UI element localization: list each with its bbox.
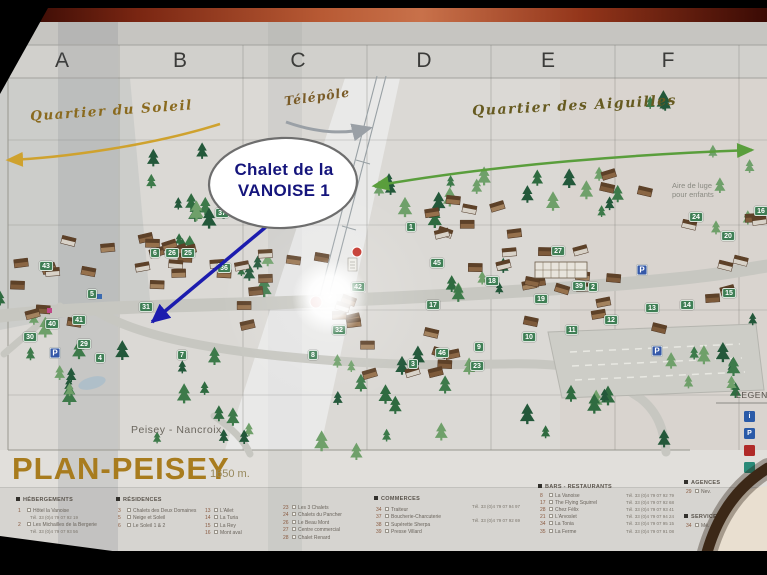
legend-item: 13L'Ailet	[205, 508, 233, 514]
legend-item: 14La Turia	[205, 515, 238, 521]
legend-item: 29Nev.	[686, 489, 711, 495]
legend-item: 34La Tonia	[540, 521, 574, 527]
legend-item: 1Hôtel la Vanoise	[18, 508, 69, 514]
legend-tel: Tél. 33 (0)4 79 07 93 41	[626, 507, 674, 512]
legend-section-title: SERVICES	[684, 514, 721, 520]
legend-item: 35La Ferme	[540, 529, 576, 535]
legend-item: 5Neige et Soleil	[118, 515, 165, 521]
letterbox-top	[0, 0, 767, 8]
legend-section-title: COMMERCES	[374, 496, 420, 502]
legend-tel: Tél. 33 (0)4 79 07 95 15	[626, 521, 674, 526]
legend-tel: Tél. 33 (0)4 79 07 94 24	[626, 514, 674, 519]
legend-text-block: HÉBERGEMENTS1Hôtel la VanoiseTél. 33 (0)…	[0, 0, 767, 575]
legend-item: 16Mont aval	[205, 530, 242, 536]
legend-item: 21L'Arvoslet	[540, 514, 577, 520]
legend-tel: Tél. 33 (0)4 79 07 94 97	[472, 504, 520, 509]
legend-item: 15La Rey	[205, 523, 236, 529]
photo-of-resort-map: ABCDEF	[0, 0, 767, 575]
legend-tel: Tél. 33 (0)4 79 07 92 69	[472, 518, 520, 523]
legend-section-title: AGENCES	[684, 480, 720, 486]
legend-item: 8La Vanoise	[540, 493, 580, 499]
legend-item: 34Traiteur	[376, 507, 408, 513]
legend-item: 23Les 3 Chalets	[283, 505, 329, 511]
legend-item: 26Le Beau Mont	[283, 520, 329, 526]
legend-tel: Tél. 33 (0)4 79 07 92 79	[626, 493, 674, 498]
letterbox-bottom	[0, 551, 767, 575]
legend-item: 38Supérette Sherpa	[376, 522, 430, 528]
legend-item: 2Les Michailles de la Bergerie	[18, 522, 97, 528]
legend-item: 39Presse Villard	[376, 529, 422, 535]
legend-item: 24Chalets du Pancher	[283, 512, 342, 518]
legend-item: 28Chez Félix	[540, 507, 579, 513]
legend-section-title: HÉBERGEMENTS	[16, 497, 73, 503]
legend-item: 17The Flying Squirrel	[540, 500, 597, 506]
legend-tel: Tél. 33 (0)4 79 07 93 56	[30, 529, 78, 534]
legend-item: 37Boucherie-Charcuterie	[376, 514, 441, 520]
legend-tel: Tél. 33 (0)4 79 07 92 19	[30, 515, 78, 520]
legend-tel: Tél. 33 (0)4 79 07 91 08	[626, 529, 674, 534]
legend-tel: Tél. 33 (0)4 79 07 92 68	[626, 500, 674, 505]
legend-item: 6Le Soleil 1 & 2	[118, 523, 165, 529]
legend-item: 3Chalets des Deux Domaines	[118, 508, 196, 514]
legend-item: 28Chalet Renard	[283, 535, 330, 541]
legend-item: 27Centre commercial	[283, 527, 340, 533]
legend-section-title: BARS - RESTAURANTS	[538, 484, 612, 490]
legend-section-title: RÉSIDENCES	[116, 497, 162, 503]
legend-item: 34Mé.	[686, 523, 709, 529]
